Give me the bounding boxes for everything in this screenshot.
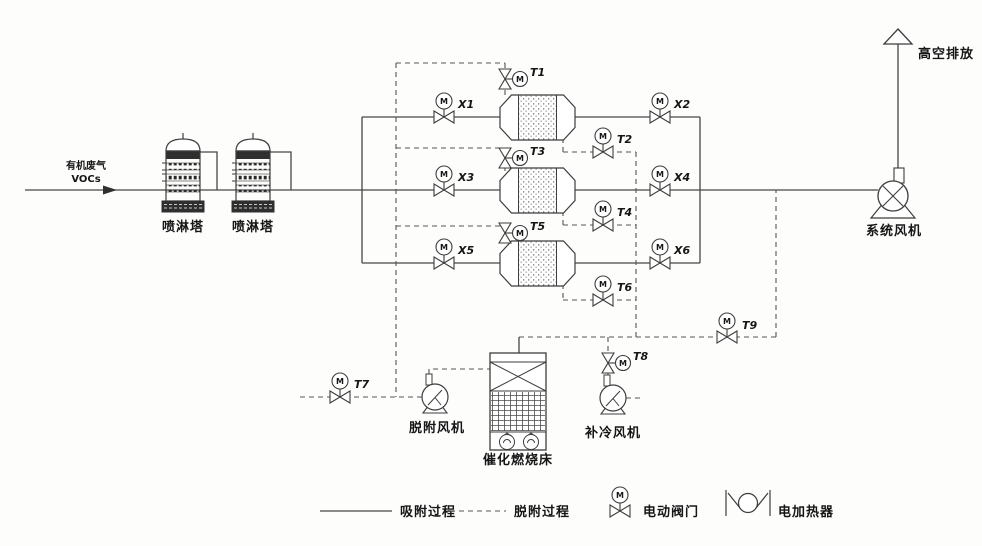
- valve-t1-label: T1: [530, 66, 545, 79]
- valve-x4: [650, 166, 670, 196]
- valve-t4-label: T4: [617, 206, 632, 219]
- valve-t4: [593, 201, 613, 231]
- valve-x5: [434, 239, 454, 269]
- spray-tower-2-label: 喷淋塔: [232, 219, 274, 235]
- flow-arrow-icon: [103, 186, 117, 195]
- legend-heater-label: 电加热器: [778, 504, 834, 520]
- valve-x3-label: X3: [457, 171, 474, 184]
- pipe-t5-branch: [396, 226, 505, 244]
- valve-t5-label: T5: [530, 220, 546, 233]
- valve-t7: [330, 373, 350, 403]
- pipe-desorbfan-outlet: [429, 369, 490, 374]
- valve-t3-label: T3: [530, 145, 546, 158]
- legend-valve-label: 电动阀门: [643, 504, 699, 520]
- process-flow-diagram: M M: [0, 0, 982, 546]
- valve-x2: [650, 93, 670, 123]
- catalyst-bed-icon: [491, 392, 545, 431]
- cooling-fan-label: 补冷风机: [584, 425, 641, 441]
- valve-t8-label: T8: [633, 350, 649, 363]
- system-fan-label: 系统风机: [866, 223, 922, 239]
- adsorber-vessel-3: [500, 241, 575, 286]
- valve-t7-label: T7: [354, 378, 370, 391]
- valve-x5-label: X5: [457, 244, 474, 257]
- valve-t9-label: T9: [742, 319, 758, 332]
- inlet-label: 有机废气 VOCs: [66, 159, 106, 185]
- desorption-fan-label: 脱附风机: [409, 420, 465, 436]
- valve-x4-label: X4: [673, 171, 690, 184]
- desorption-fan: [422, 374, 448, 413]
- catalytic-bed: 催化燃烧床: [483, 353, 553, 468]
- legend-valve-icon: [610, 487, 630, 517]
- pipe-tower1-outlet: [200, 152, 217, 190]
- legend-desorption-label: 脱附过程: [514, 504, 570, 520]
- solid-pipes: [25, 35, 898, 353]
- valve-x1: [434, 93, 454, 123]
- valve-t3: [499, 148, 528, 168]
- valve-x3: [434, 166, 454, 196]
- valve-x6-label: X6: [673, 244, 690, 257]
- spray-tower-1: [162, 133, 204, 212]
- inlet-label-line1: 有机废气: [66, 159, 106, 172]
- valve-x2-label: X2: [673, 98, 690, 111]
- pipe-tower2-outlet: [270, 152, 291, 190]
- catalytic-bed-label: 催化燃烧床: [483, 452, 553, 468]
- valve-t9: [717, 313, 737, 343]
- spray-tower-1-label: 喷淋塔: [162, 219, 204, 235]
- valve-t2: [593, 128, 613, 158]
- inlet-label-line2: VOCs: [71, 174, 100, 185]
- pipe-t1-branch: [396, 63, 505, 99]
- cooling-fan: [600, 375, 626, 414]
- spray-tower-2: [232, 133, 274, 212]
- stack-arrow-icon: [884, 29, 912, 44]
- legend-adsorption-label: 吸附过程: [400, 504, 456, 520]
- legend-heater-icon: [726, 490, 770, 516]
- valve-t1: [499, 69, 528, 89]
- discharge-label: 高空排放: [918, 46, 974, 62]
- diagram-canvas: M M: [0, 0, 982, 546]
- adsorber-vessel-1: [500, 95, 575, 140]
- valve-x6: [650, 239, 670, 269]
- valve-t2-label: T2: [617, 133, 633, 146]
- adsorber-vessel-2: [500, 168, 575, 213]
- system-fan: 系统风机: [866, 168, 922, 239]
- pipe-t3-branch: [396, 148, 505, 171]
- legend: 吸附过程 脱附过程 电动阀门 电加热器: [320, 487, 834, 520]
- valve-t6: [593, 276, 613, 306]
- valve-t5: [499, 223, 528, 243]
- valve-t8: [602, 353, 631, 373]
- pipe-vessel-inlets: [362, 117, 500, 263]
- valve-t6-label: T6: [617, 281, 633, 294]
- valve-x1-label: X1: [457, 98, 474, 111]
